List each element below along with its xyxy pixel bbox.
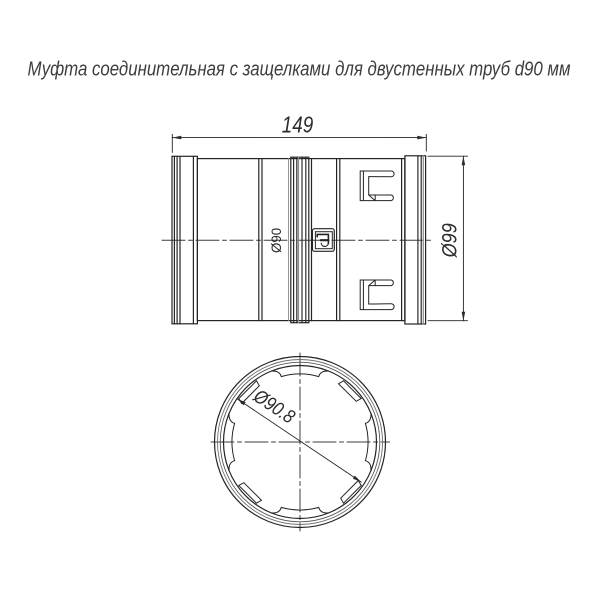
svg-text:Ø99: Ø99 <box>438 223 462 258</box>
svg-text:Ø90: Ø90 <box>269 227 284 253</box>
svg-text:149: 149 <box>282 113 314 138</box>
svg-text:Муфта соединительная с защелка: Муфта соединительная с защелками для дву… <box>28 58 571 81</box>
